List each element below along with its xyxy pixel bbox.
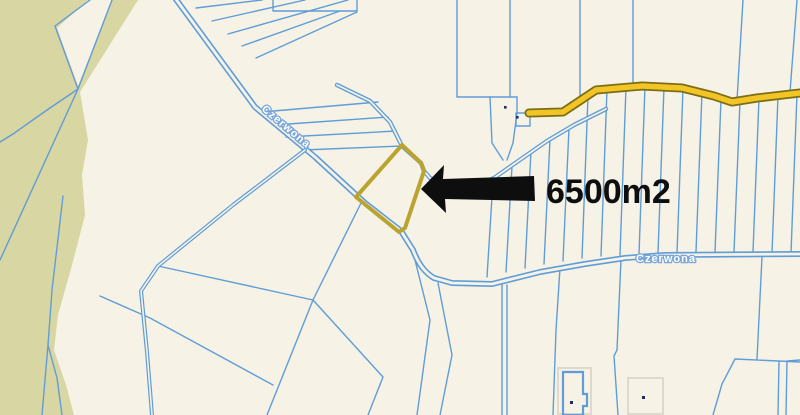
map-background bbox=[0, 0, 800, 415]
map-canvas[interactable]: Czerwona Czerwona 6500m2 bbox=[0, 0, 800, 415]
street-name-label-horizontal: Czerwona bbox=[636, 253, 696, 265]
area-annotation-label: 6500m2 bbox=[546, 173, 671, 211]
cadastral-map[interactable]: Czerwona Czerwona 6500m2 bbox=[0, 0, 800, 415]
